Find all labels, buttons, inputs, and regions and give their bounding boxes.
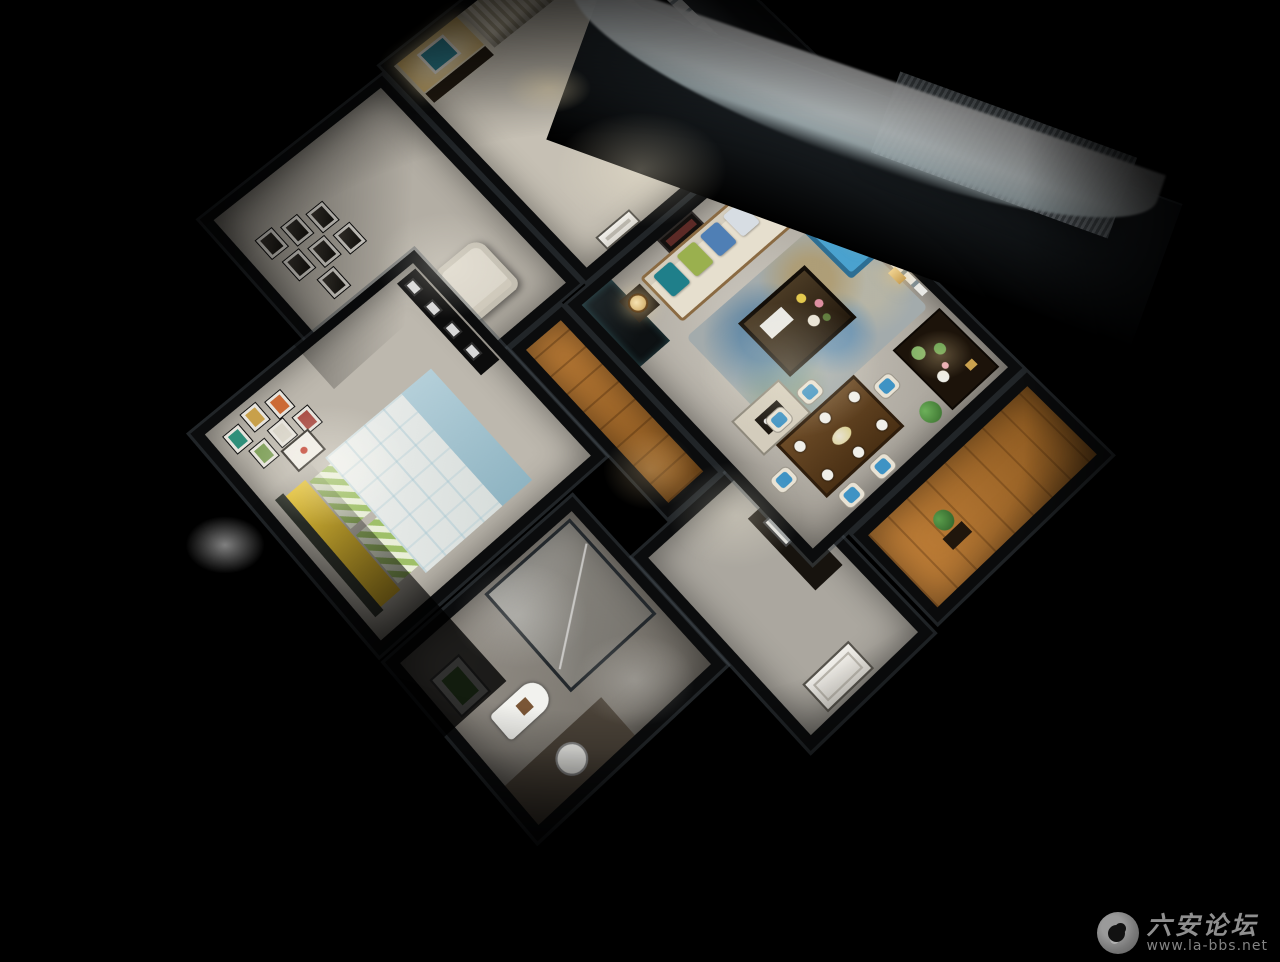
picture-frame bbox=[266, 390, 295, 418]
leaves bbox=[821, 312, 832, 323]
picture-frame bbox=[281, 215, 313, 245]
topiary-plant bbox=[915, 397, 947, 428]
place-setting bbox=[792, 439, 808, 455]
night-scene: 六安论坛 www.la-bbs.net bbox=[0, 0, 1280, 960]
botanical-print bbox=[429, 654, 491, 718]
chair-seat bbox=[842, 486, 861, 505]
picture-frame bbox=[463, 342, 483, 361]
cushion bbox=[676, 241, 714, 277]
picture-frame bbox=[256, 228, 288, 258]
gold-box bbox=[965, 358, 978, 370]
place-setting bbox=[820, 467, 836, 483]
chair-seat bbox=[878, 377, 897, 395]
place-setting bbox=[874, 417, 890, 433]
celadon-vase bbox=[931, 340, 948, 356]
picture-frame bbox=[283, 249, 315, 280]
serving-tray bbox=[759, 307, 793, 339]
blossoms bbox=[940, 361, 950, 371]
cushion bbox=[699, 221, 737, 257]
chair-seat bbox=[775, 471, 794, 490]
white-vase bbox=[805, 312, 822, 328]
flower-centerpiece bbox=[829, 423, 855, 448]
bedroom-door bbox=[595, 209, 641, 250]
celadon-vase bbox=[908, 343, 928, 362]
teal-abstract-painting bbox=[417, 34, 462, 74]
picture-frame bbox=[309, 236, 341, 267]
picture-frame bbox=[250, 439, 279, 468]
curtain-wall-top bbox=[461, 0, 598, 48]
place-setting bbox=[817, 410, 833, 425]
cushion bbox=[653, 261, 691, 297]
picture-frame bbox=[307, 202, 339, 232]
watermark-site-url: www.la-bbs.net bbox=[1146, 939, 1268, 954]
picture-frame bbox=[404, 278, 424, 297]
pink-flowers bbox=[813, 297, 826, 309]
glass-shower bbox=[484, 518, 656, 692]
watermark-site-name: 六安论坛 bbox=[1146, 913, 1268, 939]
place-setting bbox=[850, 444, 866, 460]
picture-frame bbox=[318, 267, 350, 298]
dining-chair bbox=[768, 464, 800, 496]
chair-seat bbox=[801, 383, 820, 401]
front-door bbox=[802, 641, 874, 713]
chair-seat bbox=[873, 457, 892, 476]
watermark-text: 六安论坛 www.la-bbs.net bbox=[1146, 913, 1268, 954]
picture-frame bbox=[334, 223, 366, 253]
logo-swirl bbox=[1108, 925, 1125, 942]
picture-frame bbox=[224, 425, 253, 454]
picture-frame bbox=[423, 299, 443, 318]
alarm-clock bbox=[299, 445, 309, 455]
watermark: 六安论坛 www.la-bbs.net bbox=[1097, 912, 1268, 954]
round-basin bbox=[549, 735, 595, 783]
place-setting bbox=[846, 389, 862, 404]
white-flower-vase bbox=[935, 368, 952, 385]
picture-frame bbox=[443, 320, 463, 339]
chair-seat bbox=[770, 411, 789, 429]
picture-frame bbox=[241, 403, 270, 431]
yellow-flowers bbox=[794, 292, 808, 305]
toilet-lid-item bbox=[516, 697, 534, 716]
forum-logo-icon bbox=[1097, 912, 1139, 954]
toilet bbox=[489, 676, 554, 741]
